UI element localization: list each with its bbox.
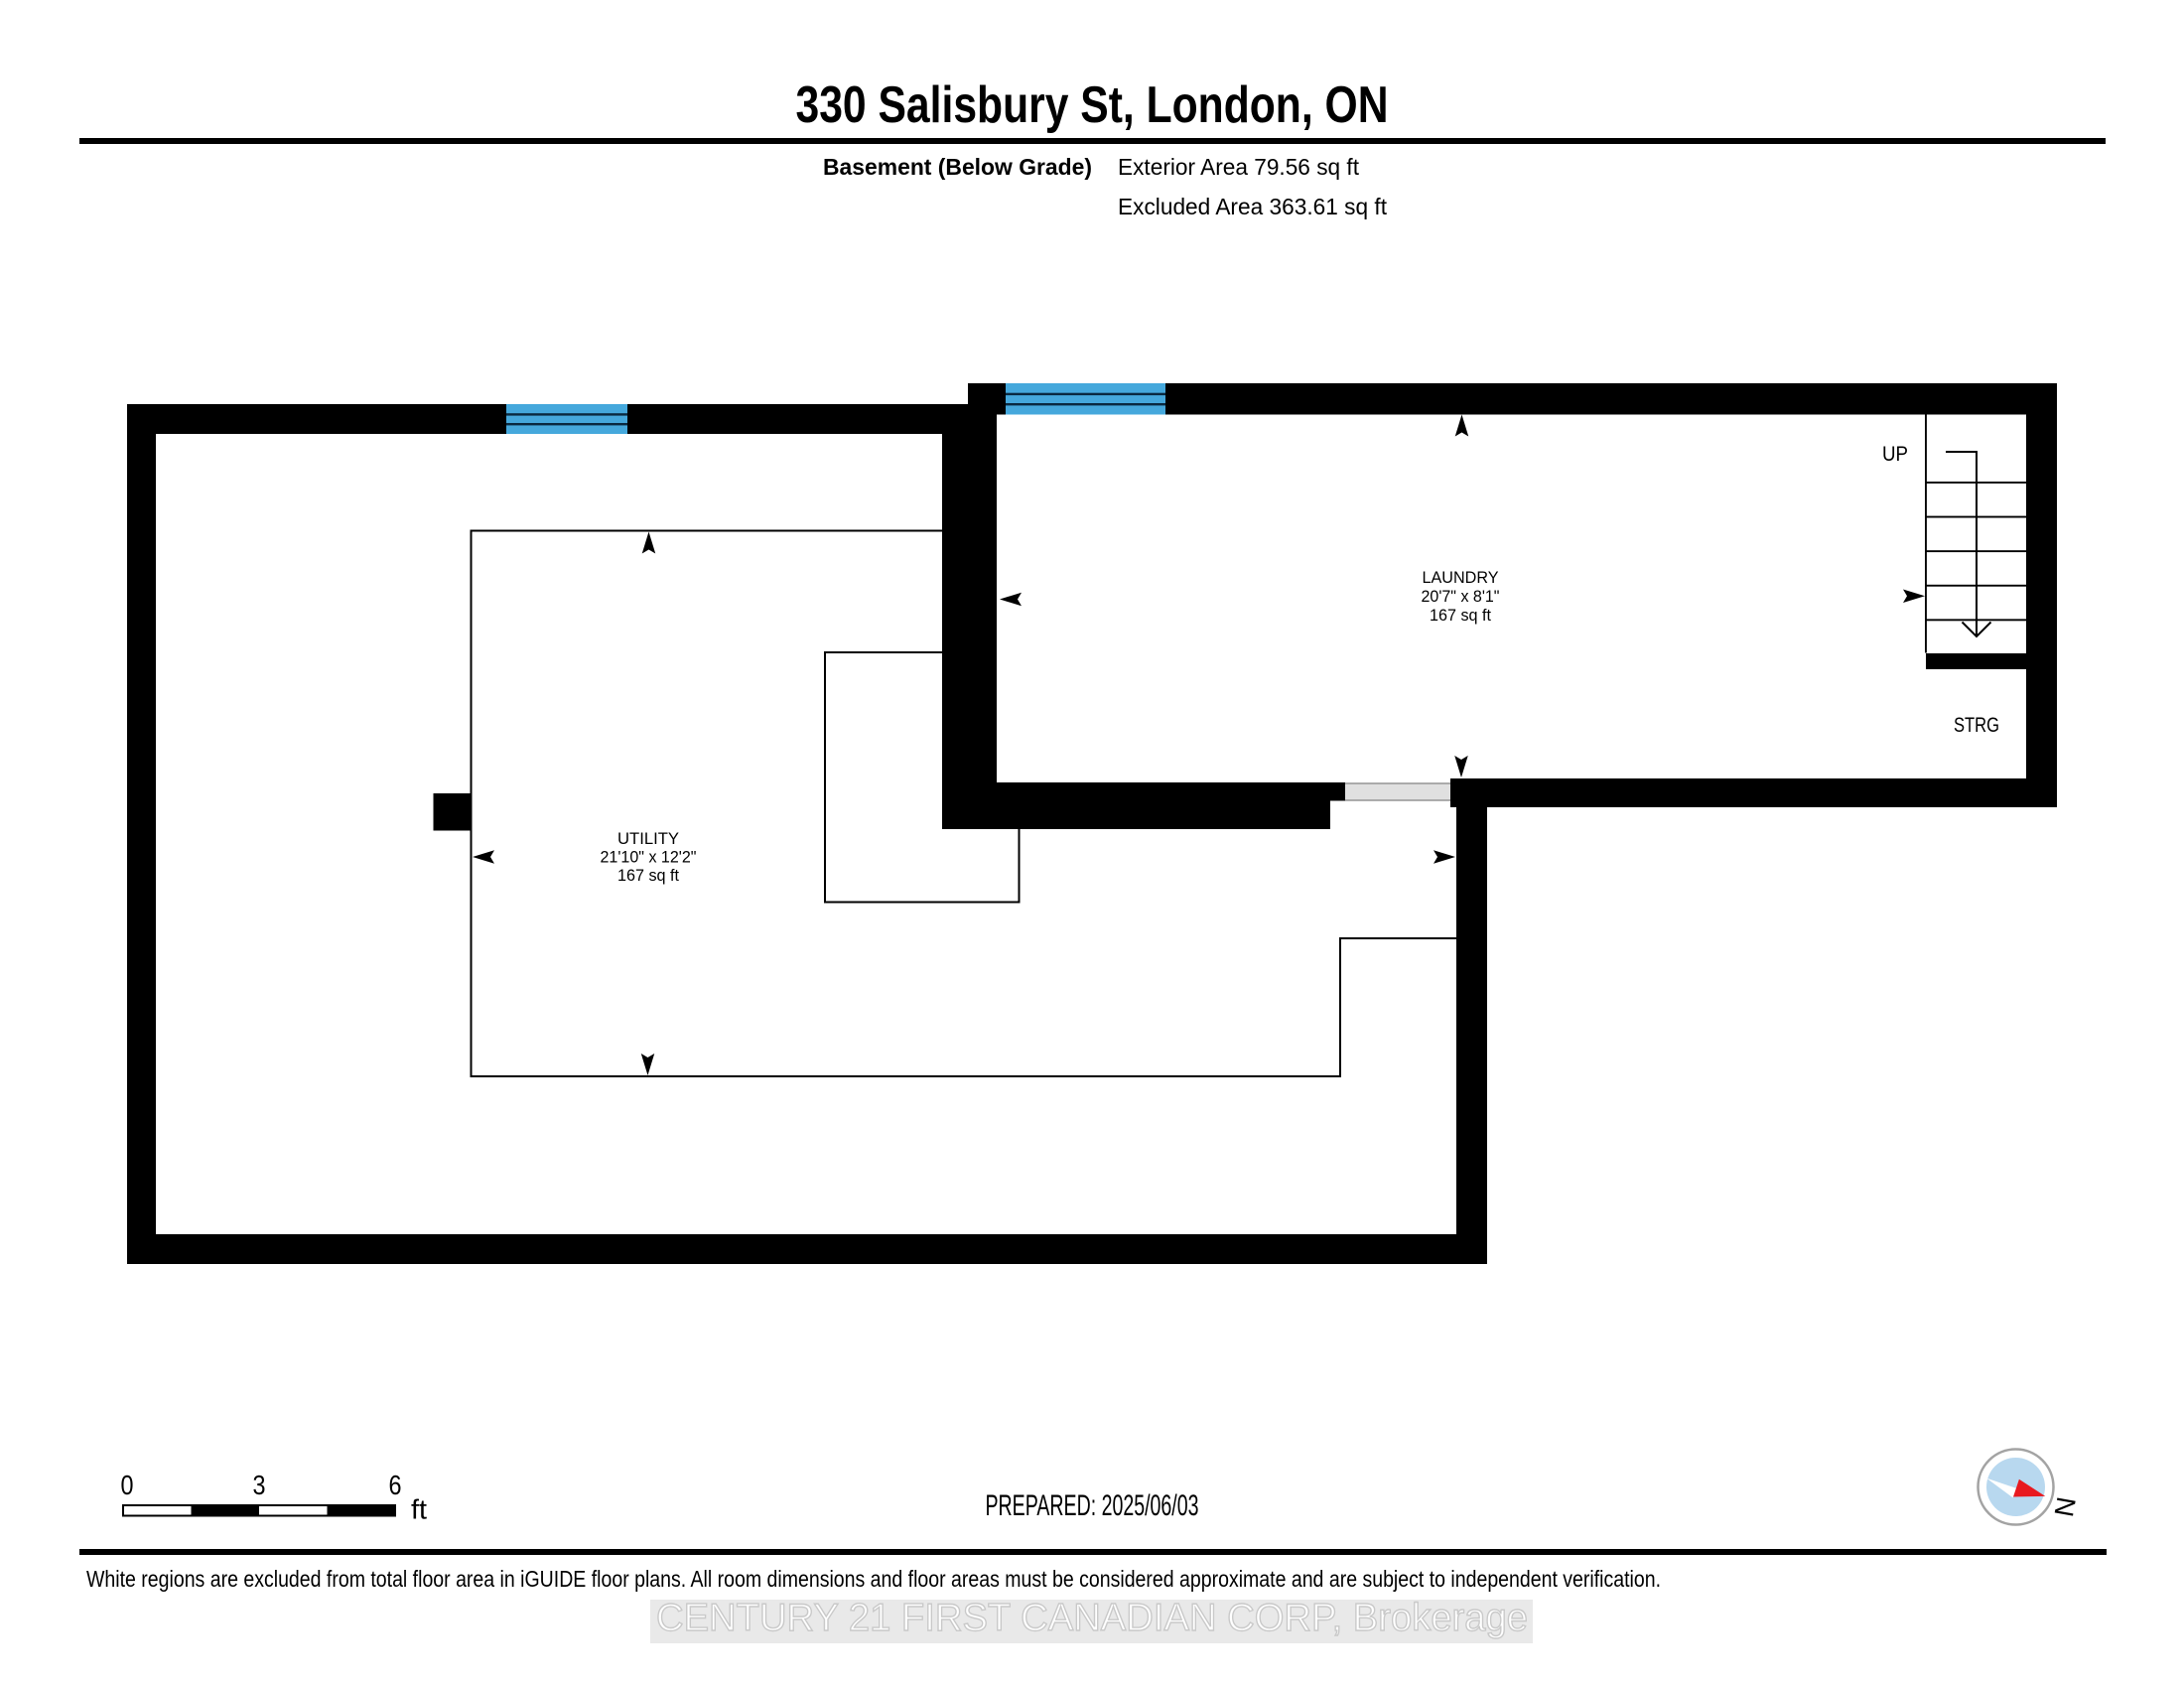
svg-text:Exterior Area 79.56 sq ft: Exterior Area 79.56 sq ft: [1118, 154, 1360, 180]
svg-text:CENTURY 21 FIRST CANADIAN CORP: CENTURY 21 FIRST CANADIAN CORP, Brokerag…: [656, 1597, 1528, 1639]
svg-text:20'7" x 8'1": 20'7" x 8'1": [1422, 587, 1500, 606]
svg-text:0: 0: [121, 1470, 134, 1500]
svg-text:6: 6: [389, 1470, 402, 1500]
svg-text:LAUNDRY: LAUNDRY: [1423, 568, 1499, 587]
svg-text:UTILITY: UTILITY: [617, 829, 679, 848]
svg-text:White regions are excluded fro: White regions are excluded from total fl…: [86, 1566, 1661, 1592]
svg-text:STRG: STRG: [1954, 714, 1999, 737]
svg-text:167 sq ft: 167 sq ft: [617, 866, 679, 885]
svg-text:PREPARED: 2025/06/03: PREPARED: 2025/06/03: [986, 1489, 1199, 1522]
svg-text:330 Salisbury St, London, ON: 330 Salisbury St, London, ON: [796, 76, 1389, 134]
svg-text:ft: ft: [411, 1494, 427, 1525]
svg-text:Excluded Area 363.61 sq ft: Excluded Area 363.61 sq ft: [1118, 194, 1388, 219]
svg-text:Basement (Below Grade): Basement (Below Grade): [823, 154, 1092, 180]
svg-text:UP: UP: [1882, 443, 1908, 466]
svg-text:167 sq ft: 167 sq ft: [1430, 606, 1491, 625]
svg-text:21'10" x 12'2": 21'10" x 12'2": [601, 848, 697, 867]
svg-text:N: N: [2048, 1494, 2081, 1518]
svg-text:3: 3: [253, 1470, 266, 1500]
